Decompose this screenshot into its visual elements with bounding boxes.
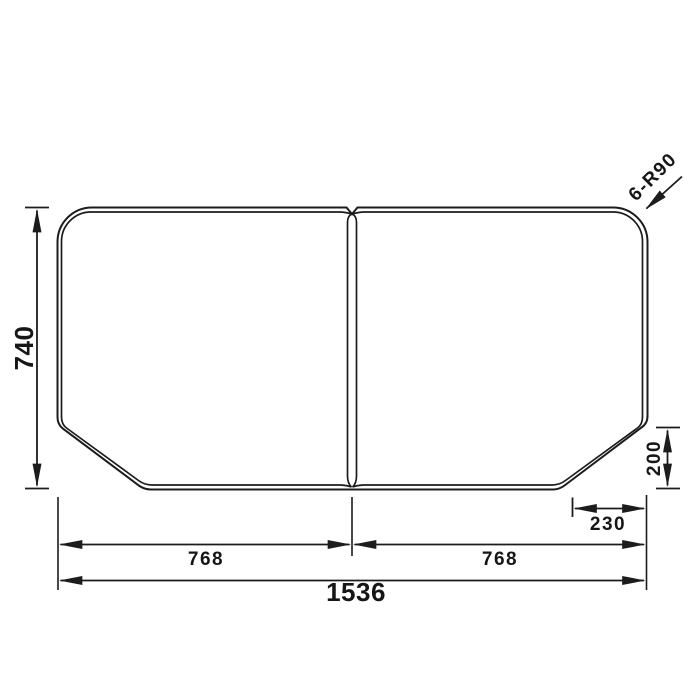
extension-lines (58, 495, 647, 590)
dim-total-width-label: 1536 (326, 577, 386, 607)
dim-cut-height-label: 200 (644, 440, 665, 476)
cover-outer-outline (58, 208, 648, 490)
right-panel-outline (353, 212, 643, 487)
corner-radius-note-label: 6-R90 (625, 149, 682, 206)
left-panel-outline (62, 212, 352, 487)
dim-height-label: 740 (9, 326, 39, 371)
cover-body (58, 208, 648, 490)
bath-lid-dimension-drawing: 740 768 768 1536 200 230 (0, 0, 700, 700)
dim-cut-width-label: 230 (590, 514, 626, 535)
dim-left-panel-width-label: 768 (188, 549, 224, 570)
technical-drawing-canvas: 740 768 768 1536 200 230 (0, 0, 700, 700)
dim-right-panel-width-label: 768 (482, 549, 518, 570)
